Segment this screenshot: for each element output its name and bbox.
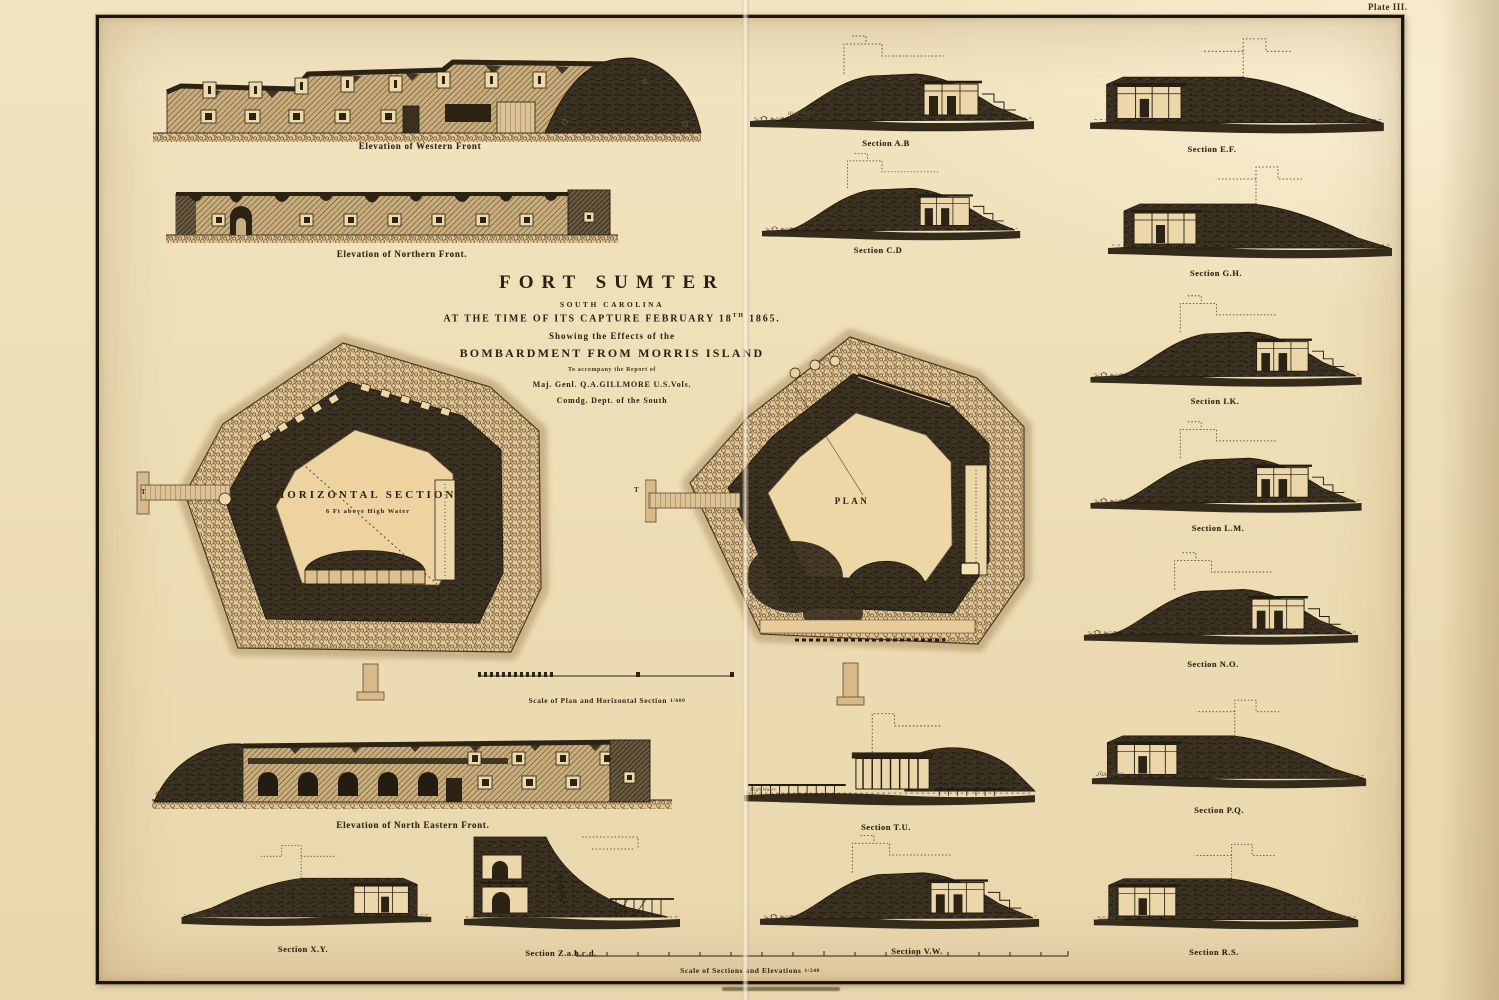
sections-scale-caption: Scale of Sections and Elevations1/240: [680, 966, 820, 975]
high-water-label-tu: High Water: [750, 788, 776, 793]
section-rs-caption: Section R.S.: [1189, 948, 1239, 957]
plan-drawing: [645, 325, 1080, 713]
section-vw-drawing: [758, 828, 1043, 943]
elevation-northern-front-drawing: [160, 172, 630, 252]
plan-scale-caption: Scale of Plan and Horizontal Section1/60…: [528, 696, 685, 705]
high-water-label-pq: High Water: [1098, 772, 1124, 777]
section-pq-drawing: [1090, 688, 1370, 803]
section-ik-caption: Section I.K.: [1191, 397, 1240, 406]
map-subtitle: SOUTH CAROLINA: [560, 300, 664, 309]
section-ik-drawing: [1082, 292, 1372, 397]
capture-date-line: AT THE TIME OF ITS CAPTURE FEBRUARY 18TH…: [443, 313, 780, 324]
high-water-label-rs: High Water: [1098, 918, 1124, 923]
high-water-label-xy: High Water: [196, 915, 222, 920]
horizontal-section-label: HORIZONTAL SECTION: [276, 489, 457, 501]
section-pq-caption: Section P.Q.: [1194, 806, 1244, 815]
section-no-caption: Section N.O.: [1187, 660, 1239, 669]
section-ab-drawing: [748, 32, 1038, 142]
north-eastern-front-illustration: [148, 712, 683, 820]
horizontal-section-illustration: [135, 332, 627, 704]
sections-scale-bar: [574, 948, 1072, 962]
section-xy-drawing: [178, 832, 433, 942]
section-rs-drawing: [1092, 832, 1362, 944]
elevation-northern-front-caption: Elevation of Northern Front.: [337, 250, 467, 259]
western-front-illustration: [145, 32, 710, 154]
northern-front-illustration: [160, 172, 630, 252]
section-cd-drawing: [752, 150, 1032, 250]
section-no-drawing: [1082, 548, 1362, 656]
section-tu-drawing: [742, 698, 1037, 818]
section-gh-caption: Section G.H.: [1190, 269, 1242, 278]
plan-label: PLAN: [835, 496, 870, 506]
section-ef-caption: Section E.F.: [1188, 145, 1237, 154]
section-gh-drawing: [1106, 158, 1396, 270]
plan-scale-bar: [476, 666, 806, 682]
elevation-western-front-drawing: [145, 32, 710, 154]
engraver-credit-smudge: [722, 987, 840, 991]
section-xy-caption: Section X.Y.: [278, 945, 328, 954]
right-fort-wharf-letter: T: [634, 486, 639, 494]
section-ef-drawing: [1088, 30, 1388, 145]
section-cd-caption: Section C.D: [854, 246, 902, 255]
horizontal-section-sublabel: 6 Ft above High Water: [326, 508, 410, 515]
horizontal-section-plan-drawing: [135, 332, 627, 704]
plan-illustration: [645, 325, 1080, 713]
high-water-label-ef: High Water: [1316, 122, 1342, 127]
high-water-label-ab: High Water: [788, 112, 814, 117]
plate-number-label: Plate III.: [1368, 2, 1408, 12]
elevation-north-eastern-front-drawing: [148, 712, 683, 820]
section-lm-caption: Section L.M.: [1192, 524, 1245, 533]
map-title: FORT SUMTER: [499, 272, 725, 294]
section-zabcd-drawing: [462, 828, 682, 940]
section-ab-caption: Section A.B: [862, 139, 910, 148]
plate-page: Plate III.: [0, 0, 1499, 1000]
elevation-western-front-caption: Elevation of Western Front: [359, 142, 482, 151]
section-lm-drawing: [1082, 418, 1372, 523]
left-fort-wharf-letter: T: [141, 488, 146, 496]
